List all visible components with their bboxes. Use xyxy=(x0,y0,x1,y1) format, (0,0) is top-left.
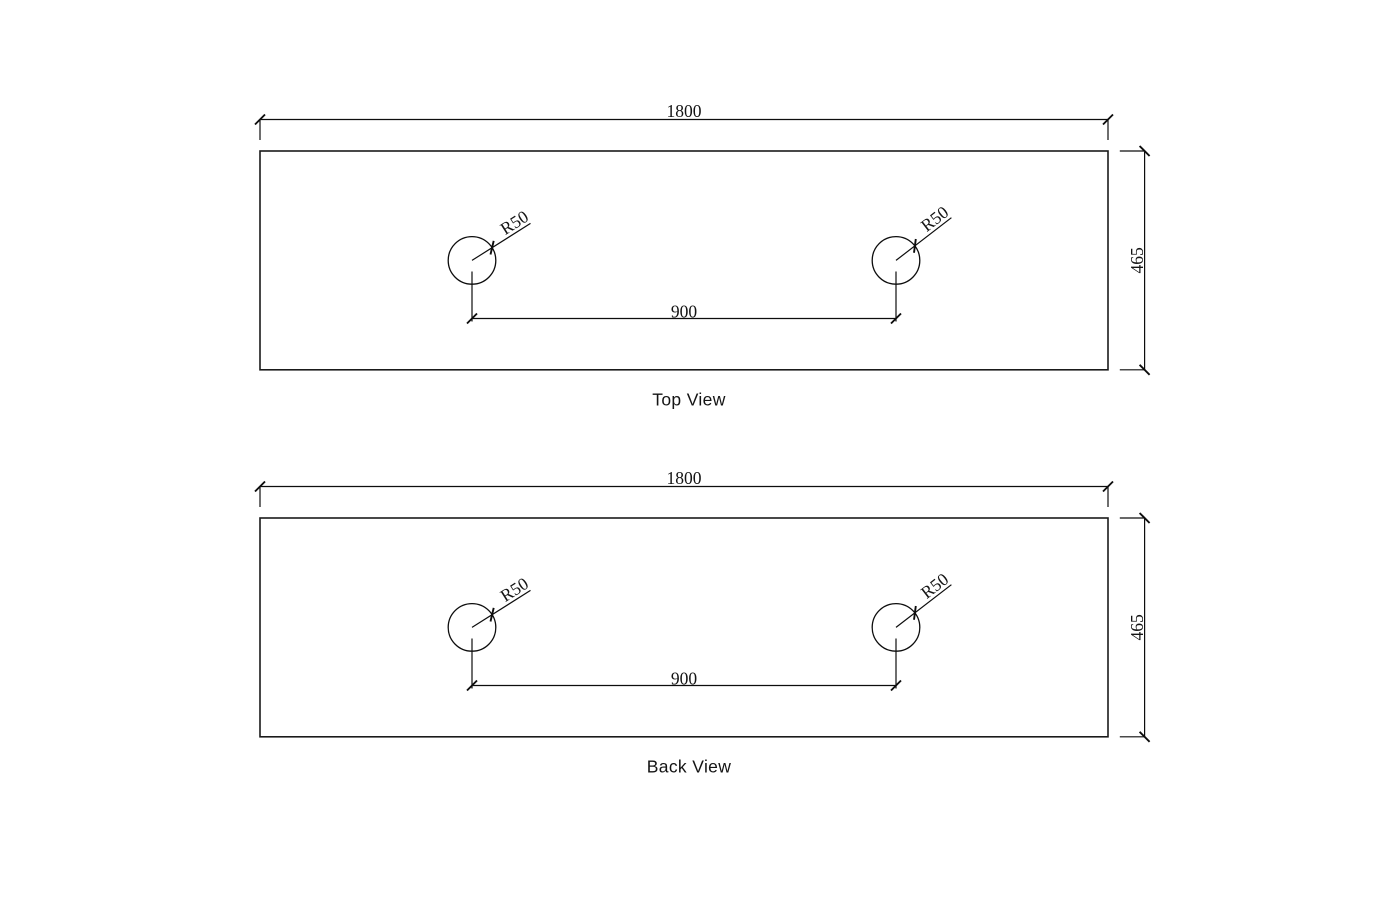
svg-text:900: 900 xyxy=(671,301,698,321)
svg-text:1800: 1800 xyxy=(667,101,702,121)
svg-text:900: 900 xyxy=(671,668,698,688)
svg-text:R50: R50 xyxy=(497,573,533,606)
svg-text:R50: R50 xyxy=(497,206,533,239)
svg-text:R50: R50 xyxy=(917,569,953,603)
svg-text:R50: R50 xyxy=(917,202,953,236)
svg-text:1800: 1800 xyxy=(667,468,702,488)
svg-text:Back View: Back View xyxy=(647,757,732,777)
svg-text:465: 465 xyxy=(1127,614,1147,641)
svg-text:465: 465 xyxy=(1127,247,1147,274)
svg-text:Top View: Top View xyxy=(652,389,726,409)
